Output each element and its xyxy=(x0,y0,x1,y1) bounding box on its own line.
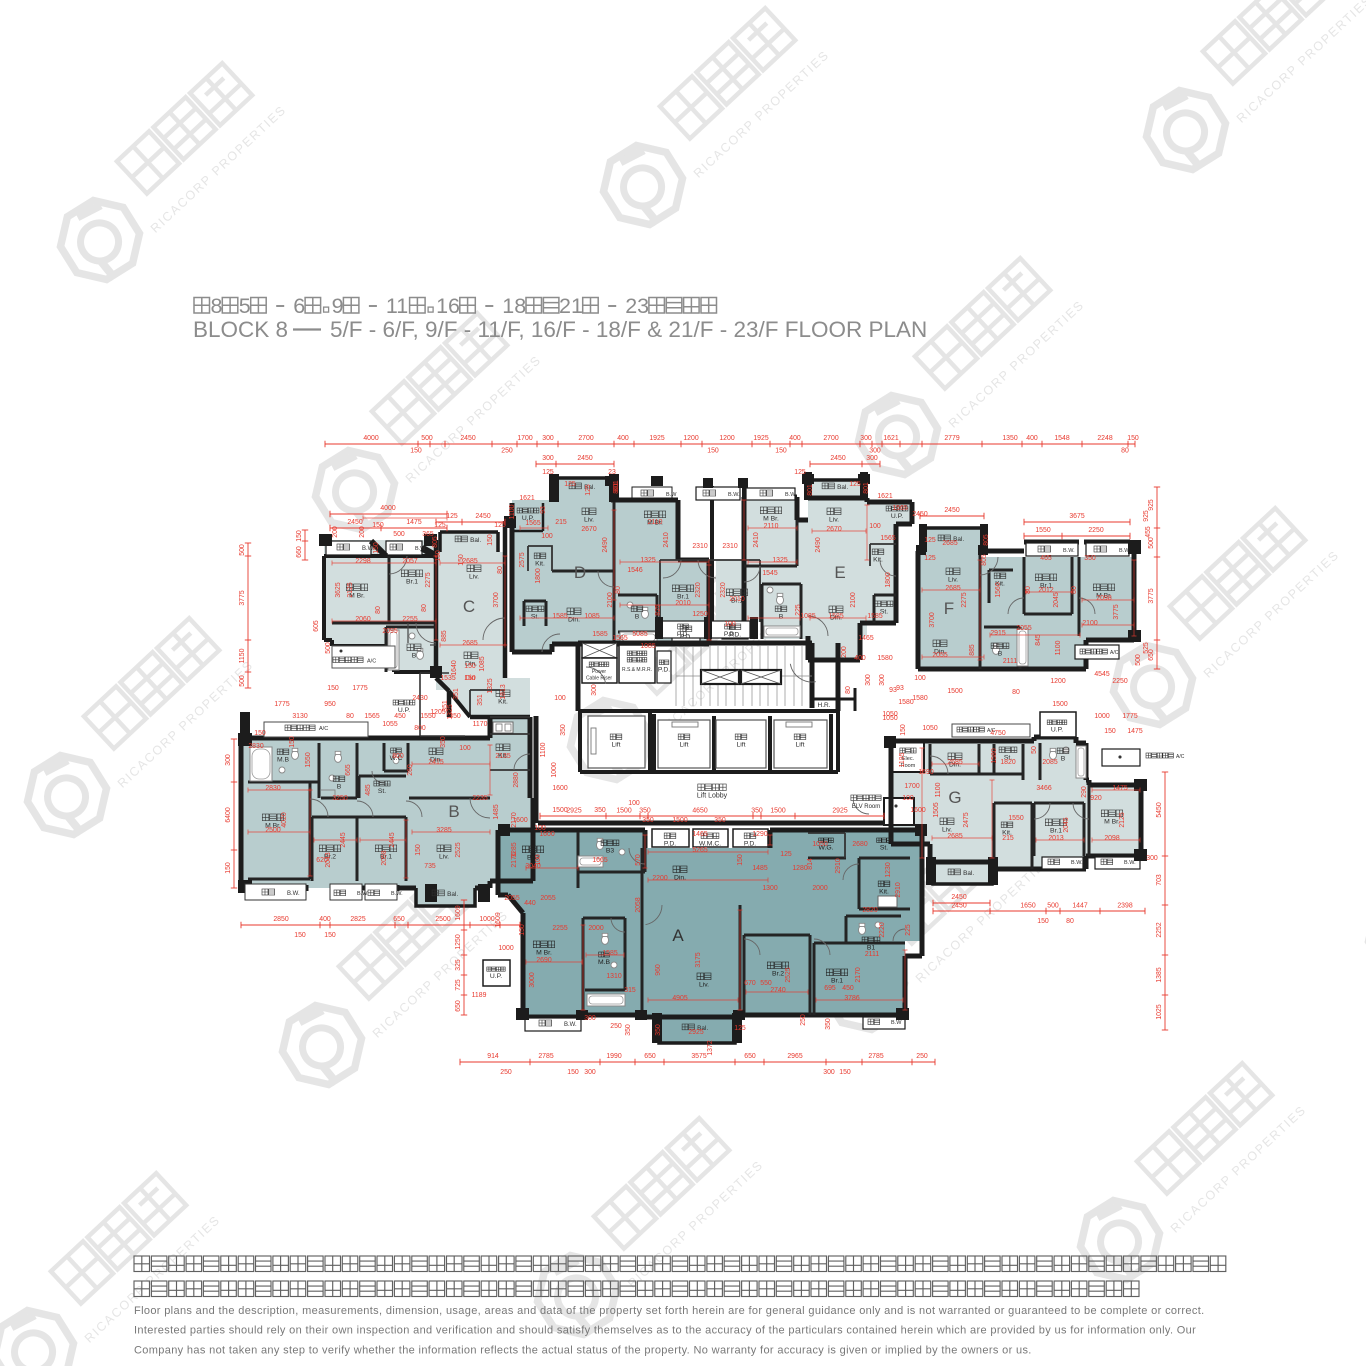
svg-text:351: 351 xyxy=(477,694,484,706)
svg-text:1640: 1640 xyxy=(451,660,458,675)
svg-text:100: 100 xyxy=(902,795,914,802)
svg-text:250: 250 xyxy=(916,1053,928,1060)
svg-text:1548: 1548 xyxy=(1054,435,1069,442)
svg-text:150: 150 xyxy=(373,542,380,554)
svg-text:Interested parties should rely: Interested parties should rely on their … xyxy=(134,1325,1196,1337)
svg-text:2450: 2450 xyxy=(912,511,927,518)
svg-text:100: 100 xyxy=(914,675,926,682)
svg-text:ELV Room: ELV Room xyxy=(852,804,881,810)
svg-text:Br.1: Br.1 xyxy=(406,579,418,586)
svg-text:1565: 1565 xyxy=(525,520,540,527)
svg-text:2475: 2475 xyxy=(963,812,970,827)
svg-text:80: 80 xyxy=(845,686,852,694)
svg-text:2450: 2450 xyxy=(830,455,845,462)
svg-text:125: 125 xyxy=(780,851,792,858)
svg-text:5: 5 xyxy=(239,294,251,318)
svg-text:3775: 3775 xyxy=(1113,604,1120,619)
svg-text:250: 250 xyxy=(500,1069,512,1076)
svg-text:2779: 2779 xyxy=(944,435,959,442)
svg-text:925: 925 xyxy=(1143,510,1150,522)
svg-text:2310: 2310 xyxy=(722,543,737,550)
svg-text:M.B: M.B xyxy=(598,959,611,966)
svg-text:2910: 2910 xyxy=(895,882,902,897)
svg-text:400: 400 xyxy=(319,916,331,923)
svg-text:2685: 2685 xyxy=(462,640,477,647)
svg-text:1565: 1565 xyxy=(880,535,895,542)
svg-text:500: 500 xyxy=(239,544,246,556)
svg-text:150: 150 xyxy=(1127,435,1139,442)
svg-text:1025: 1025 xyxy=(1156,1004,1163,1019)
svg-text:1550: 1550 xyxy=(1008,815,1023,822)
svg-text:Liv.: Liv. xyxy=(439,854,449,861)
svg-text:920: 920 xyxy=(1090,795,1102,802)
svg-text:300: 300 xyxy=(542,435,554,442)
svg-text:2398: 2398 xyxy=(1117,903,1132,910)
svg-text:2098: 2098 xyxy=(1104,835,1119,842)
svg-text:2830: 2830 xyxy=(248,743,263,750)
svg-text:1700: 1700 xyxy=(904,783,919,790)
svg-text:2010: 2010 xyxy=(675,600,690,607)
svg-text:2111: 2111 xyxy=(865,951,879,958)
svg-text:4905: 4905 xyxy=(672,995,687,1002)
svg-text:1300: 1300 xyxy=(762,885,777,892)
svg-text:2525: 2525 xyxy=(785,967,792,982)
svg-text:B.W.: B.W. xyxy=(1124,860,1136,866)
svg-text:3775: 3775 xyxy=(1148,588,1155,603)
svg-text:350: 350 xyxy=(449,713,461,720)
svg-text:1325: 1325 xyxy=(487,678,494,693)
svg-text:1475: 1475 xyxy=(406,519,421,526)
svg-text:2740: 2740 xyxy=(770,987,785,994)
svg-text:2685: 2685 xyxy=(947,833,962,840)
svg-text:D: D xyxy=(574,563,586,582)
svg-text:200: 200 xyxy=(332,526,339,538)
svg-text:B: B xyxy=(998,651,1003,658)
svg-text:665: 665 xyxy=(345,764,352,776)
svg-text:P.D.: P.D. xyxy=(744,841,756,848)
svg-text:825: 825 xyxy=(655,604,662,616)
svg-text:620: 620 xyxy=(316,857,328,864)
svg-text:A/C: A/C xyxy=(1110,650,1119,656)
svg-text:2575: 2575 xyxy=(519,552,526,567)
svg-text:2010: 2010 xyxy=(729,596,744,603)
svg-text:B.W: B.W xyxy=(415,546,426,552)
svg-text:2450: 2450 xyxy=(475,513,490,520)
svg-text:1465: 1465 xyxy=(858,635,873,642)
svg-text:1385: 1385 xyxy=(1156,967,1163,982)
svg-text:1000: 1000 xyxy=(551,762,558,777)
svg-text:P.D.: P.D. xyxy=(677,631,689,638)
svg-text:300: 300 xyxy=(823,1069,835,1076)
svg-text:B.W.: B.W. xyxy=(391,891,403,897)
svg-text:1600: 1600 xyxy=(539,831,554,838)
svg-text:215: 215 xyxy=(1002,835,1014,842)
svg-text:1475: 1475 xyxy=(1127,728,1142,735)
svg-text:1505: 1505 xyxy=(933,802,940,817)
svg-text:B: B xyxy=(1061,756,1066,763)
svg-text:St.: St. xyxy=(531,614,539,621)
svg-text:Br.1: Br.1 xyxy=(1050,828,1062,835)
svg-text:2110: 2110 xyxy=(648,519,663,526)
svg-text:1650: 1650 xyxy=(1020,903,1035,910)
svg-text:1775: 1775 xyxy=(1122,713,1137,720)
svg-text:300: 300 xyxy=(866,455,878,462)
svg-text:2410: 2410 xyxy=(753,532,760,547)
svg-text:885: 885 xyxy=(969,644,976,656)
svg-text:2450: 2450 xyxy=(951,903,966,910)
svg-text:B.W: B.W xyxy=(666,492,677,498)
svg-text:Liv.: Liv. xyxy=(829,517,839,524)
svg-text:1565: 1565 xyxy=(364,713,379,720)
svg-text:4000: 4000 xyxy=(380,505,395,512)
svg-text:16: 16 xyxy=(436,294,460,318)
svg-text:300: 300 xyxy=(869,448,881,455)
svg-text:150: 150 xyxy=(519,924,526,936)
svg-text:Din.: Din. xyxy=(674,875,686,882)
svg-text:5/F - 6/F, 9/F - 11/F, 16/F -: 5/F - 6/F, 9/F - 11/F, 16/F - 18/F & 21/… xyxy=(330,317,927,342)
svg-text:1585: 1585 xyxy=(867,613,882,620)
svg-text:300: 300 xyxy=(879,674,886,686)
svg-text:4020: 4020 xyxy=(281,812,288,827)
svg-text:650: 650 xyxy=(455,1000,462,1012)
svg-text:2450: 2450 xyxy=(347,519,362,526)
svg-text:350: 350 xyxy=(825,1018,832,1030)
svg-text:80: 80 xyxy=(375,606,382,614)
svg-text:Liv.: Liv. xyxy=(948,577,958,584)
svg-text:150: 150 xyxy=(327,685,339,692)
svg-text:215: 215 xyxy=(555,519,567,526)
svg-text:570: 570 xyxy=(635,854,642,866)
svg-text:2320: 2320 xyxy=(695,582,702,597)
svg-text:2670: 2670 xyxy=(581,526,596,533)
svg-text:350: 350 xyxy=(655,1024,662,1036)
svg-text:2450: 2450 xyxy=(460,435,475,442)
svg-text:4750: 4750 xyxy=(990,730,1005,737)
svg-text:1550: 1550 xyxy=(305,752,312,767)
svg-text:St.: St. xyxy=(378,788,386,795)
svg-text:6: 6 xyxy=(293,294,305,318)
svg-text:2058: 2058 xyxy=(381,850,388,865)
svg-text:Lift: Lift xyxy=(736,742,745,749)
svg-text:100: 100 xyxy=(554,695,566,702)
svg-text:2685: 2685 xyxy=(945,585,960,592)
svg-text:1485: 1485 xyxy=(752,865,767,872)
svg-text:80: 80 xyxy=(1066,918,1074,925)
svg-text:B3: B3 xyxy=(606,848,615,855)
svg-text:2255: 2255 xyxy=(552,925,567,932)
svg-text:3175: 3175 xyxy=(695,952,702,967)
svg-text:80: 80 xyxy=(1121,448,1129,455)
svg-text:U.P.: U.P. xyxy=(891,513,903,520)
svg-text:2055: 2055 xyxy=(932,652,947,659)
svg-text:735: 735 xyxy=(424,863,436,870)
svg-text:350: 350 xyxy=(560,724,567,736)
svg-text:150: 150 xyxy=(289,736,296,748)
svg-text:Bal.: Bal. xyxy=(963,870,974,877)
svg-text:2925: 2925 xyxy=(566,808,581,815)
svg-text:150: 150 xyxy=(464,675,476,682)
svg-text:1205: 1205 xyxy=(430,709,445,716)
svg-text:2298: 2298 xyxy=(355,558,370,565)
svg-text:2055: 2055 xyxy=(1016,625,1031,632)
svg-text:150: 150 xyxy=(567,1069,579,1076)
svg-text:2490: 2490 xyxy=(815,537,822,552)
svg-text:2220: 2220 xyxy=(879,922,886,937)
svg-text:1200: 1200 xyxy=(1050,678,1065,685)
svg-text:3130: 3130 xyxy=(292,713,307,720)
svg-text:2170: 2170 xyxy=(855,967,862,982)
svg-text:U.P.: U.P. xyxy=(1051,727,1063,734)
svg-text:Liv.: Liv. xyxy=(584,517,594,524)
svg-text:Lift: Lift xyxy=(795,742,804,749)
svg-text:150: 150 xyxy=(324,932,336,939)
svg-text:2275: 2275 xyxy=(961,592,968,607)
svg-text:93: 93 xyxy=(896,685,904,692)
svg-text:350: 350 xyxy=(751,808,763,815)
svg-text:2320: 2320 xyxy=(720,582,727,597)
svg-text:1580: 1580 xyxy=(898,699,913,706)
svg-text:150: 150 xyxy=(254,730,266,737)
svg-text:1280: 1280 xyxy=(792,865,807,872)
svg-text:Bal.: Bal. xyxy=(470,537,481,544)
svg-text:1085: 1085 xyxy=(640,643,655,650)
svg-text:703: 703 xyxy=(1156,874,1163,886)
svg-text:2170: 2170 xyxy=(511,812,518,827)
svg-text:2450: 2450 xyxy=(944,507,959,514)
svg-text:650: 650 xyxy=(393,916,405,923)
svg-text:2085: 2085 xyxy=(1042,759,1057,766)
svg-text:1585: 1585 xyxy=(552,613,567,620)
svg-text:801: 801 xyxy=(613,482,620,494)
svg-text:225: 225 xyxy=(905,924,912,936)
svg-text:465: 465 xyxy=(1040,555,1052,562)
svg-text:2098: 2098 xyxy=(1096,595,1111,602)
svg-text:2500: 2500 xyxy=(435,916,450,923)
svg-text:2415: 2415 xyxy=(428,759,443,766)
svg-text:1546: 1546 xyxy=(627,567,642,574)
svg-text:1800: 1800 xyxy=(885,572,892,587)
svg-text:2785: 2785 xyxy=(538,1053,553,1060)
svg-text:2820: 2820 xyxy=(862,907,877,914)
svg-text:1475: 1475 xyxy=(1112,785,1127,792)
svg-text:200: 200 xyxy=(359,526,366,538)
svg-text:93: 93 xyxy=(540,506,547,514)
svg-text:2700: 2700 xyxy=(823,435,838,442)
svg-text:150: 150 xyxy=(372,522,384,529)
svg-text:695: 695 xyxy=(824,985,836,992)
svg-text:1665: 1665 xyxy=(592,857,607,864)
svg-text:650: 650 xyxy=(744,1053,756,1060)
svg-text:500: 500 xyxy=(421,435,433,442)
svg-text:80: 80 xyxy=(1012,689,1020,696)
svg-text:1250: 1250 xyxy=(692,611,707,618)
svg-text:260: 260 xyxy=(407,764,414,776)
svg-text:1500: 1500 xyxy=(947,688,962,695)
svg-text:Br.2: Br.2 xyxy=(772,971,784,978)
svg-text:A/C: A/C xyxy=(367,659,376,665)
svg-text:2125: 2125 xyxy=(347,582,354,597)
svg-text:125: 125 xyxy=(585,484,592,496)
svg-text:1690: 1690 xyxy=(918,769,933,776)
svg-text:2430: 2430 xyxy=(412,695,427,702)
svg-text:B: B xyxy=(635,614,640,621)
svg-text:450: 450 xyxy=(842,985,854,992)
svg-text:80: 80 xyxy=(346,713,354,720)
svg-text:B.W.: B.W. xyxy=(728,492,740,498)
svg-text:1560: 1560 xyxy=(995,582,1002,597)
svg-text:125: 125 xyxy=(564,481,576,488)
svg-text:2013: 2013 xyxy=(1048,835,1063,842)
svg-text:2135: 2135 xyxy=(495,753,510,760)
svg-text:150: 150 xyxy=(900,724,907,736)
svg-text:1600: 1600 xyxy=(910,807,925,814)
svg-text:250: 250 xyxy=(501,448,513,455)
svg-text:2055: 2055 xyxy=(504,895,519,902)
svg-text:F: F xyxy=(944,599,954,618)
svg-text:1150: 1150 xyxy=(239,648,246,663)
svg-text:125: 125 xyxy=(924,555,936,562)
svg-text:B.W.: B.W. xyxy=(1063,548,1075,554)
svg-text:914: 914 xyxy=(487,1053,499,1060)
svg-text:B.W.: B.W. xyxy=(1071,860,1083,866)
svg-text:315: 315 xyxy=(624,987,636,994)
svg-text:1585: 1585 xyxy=(828,613,843,620)
svg-text:125: 125 xyxy=(849,481,861,488)
svg-text:885: 885 xyxy=(441,630,448,642)
svg-text:A/C: A/C xyxy=(1176,754,1185,760)
svg-text:960: 960 xyxy=(655,964,662,976)
svg-text:1775: 1775 xyxy=(352,685,367,692)
svg-text:1310: 1310 xyxy=(606,973,621,980)
svg-text:50: 50 xyxy=(1031,746,1038,754)
svg-text:500: 500 xyxy=(393,531,405,538)
svg-text:350: 350 xyxy=(642,817,654,824)
svg-text:H.R.: H.R. xyxy=(818,702,831,709)
svg-text:125: 125 xyxy=(924,537,936,544)
svg-text:300: 300 xyxy=(1146,855,1158,862)
svg-text:150: 150 xyxy=(296,530,303,542)
svg-text:B: B xyxy=(412,653,417,660)
svg-text:300: 300 xyxy=(225,754,232,766)
svg-text:125: 125 xyxy=(734,1025,746,1032)
svg-text:2045: 2045 xyxy=(1063,817,1070,832)
svg-text:1609: 1609 xyxy=(495,912,502,927)
svg-text:1545: 1545 xyxy=(762,570,777,577)
svg-text:1565: 1565 xyxy=(892,505,907,512)
svg-text:B.W.: B.W. xyxy=(564,1022,577,1028)
svg-text:725: 725 xyxy=(455,979,462,991)
svg-text:1050: 1050 xyxy=(922,725,937,732)
svg-text:2111: 2111 xyxy=(1003,658,1017,665)
svg-text:1580: 1580 xyxy=(912,695,927,702)
svg-text:1200: 1200 xyxy=(719,435,734,442)
svg-text:2850: 2850 xyxy=(273,916,288,923)
svg-text:125: 125 xyxy=(446,513,458,520)
svg-text:M Br.: M Br. xyxy=(763,516,779,523)
svg-text:1085: 1085 xyxy=(479,656,486,671)
svg-text:440: 440 xyxy=(524,900,536,907)
svg-text:C: C xyxy=(463,597,475,616)
svg-text:1800: 1800 xyxy=(535,568,542,583)
svg-text:G: G xyxy=(948,788,961,807)
svg-text:1230: 1230 xyxy=(885,862,892,877)
svg-text:2925: 2925 xyxy=(688,1029,703,1036)
svg-text:1813: 1813 xyxy=(500,684,507,699)
svg-text:2248: 2248 xyxy=(1097,435,1112,442)
svg-text:80: 80 xyxy=(421,604,428,612)
svg-text:1485: 1485 xyxy=(493,804,500,819)
svg-text:1820: 1820 xyxy=(1000,759,1015,766)
svg-text:125: 125 xyxy=(494,522,506,529)
svg-text:Kit.: Kit. xyxy=(535,561,545,568)
svg-text:St.: St. xyxy=(880,845,888,852)
svg-text:Lift: Lift xyxy=(611,742,620,749)
svg-text:2700: 2700 xyxy=(578,435,593,442)
svg-text:B.W.: B.W. xyxy=(287,891,300,897)
svg-text:150: 150 xyxy=(225,862,232,874)
svg-text:2910: 2910 xyxy=(835,858,842,873)
svg-text:B: B xyxy=(448,802,459,821)
svg-text:1100: 1100 xyxy=(935,782,942,797)
svg-text:925: 925 xyxy=(1148,499,1155,511)
svg-text:300: 300 xyxy=(865,674,872,686)
svg-text:2965: 2965 xyxy=(787,1053,802,1060)
svg-text:1609: 1609 xyxy=(455,905,462,920)
svg-text:150: 150 xyxy=(737,854,744,866)
svg-text:1000: 1000 xyxy=(498,945,513,952)
svg-text:150: 150 xyxy=(1104,728,1116,735)
svg-text:1565: 1565 xyxy=(612,635,627,642)
svg-text:500: 500 xyxy=(239,675,246,687)
svg-text:2785: 2785 xyxy=(868,1053,883,1060)
svg-text:1189: 1189 xyxy=(472,992,487,999)
svg-text:150: 150 xyxy=(707,448,719,455)
svg-text:1500: 1500 xyxy=(616,808,631,815)
svg-text:P.D.: P.D. xyxy=(724,631,736,638)
svg-text:125: 125 xyxy=(434,522,446,529)
svg-text:2825: 2825 xyxy=(350,916,365,923)
svg-text:3285: 3285 xyxy=(511,842,518,857)
svg-text:1000: 1000 xyxy=(1094,713,1109,720)
svg-text:845: 845 xyxy=(1035,634,1042,646)
svg-text:E: E xyxy=(834,563,845,582)
svg-text:250: 250 xyxy=(800,1014,807,1026)
svg-text:U.P.: U.P. xyxy=(490,973,502,980)
svg-text:1170: 1170 xyxy=(473,721,488,728)
svg-text:1990: 1990 xyxy=(606,1053,621,1060)
svg-text:2490: 2490 xyxy=(602,537,609,552)
svg-text:550: 550 xyxy=(760,980,772,987)
svg-text:9: 9 xyxy=(332,294,344,318)
svg-text:1585: 1585 xyxy=(592,631,607,638)
svg-text:1050: 1050 xyxy=(882,715,897,722)
svg-text:350: 350 xyxy=(594,807,606,814)
svg-text:1500: 1500 xyxy=(552,807,567,814)
svg-text:450: 450 xyxy=(394,713,406,720)
svg-text:3700: 3700 xyxy=(929,612,936,627)
svg-text:325: 325 xyxy=(455,959,462,971)
svg-text:400: 400 xyxy=(1026,435,1038,442)
svg-text:Bal.: Bal. xyxy=(837,484,848,491)
svg-text:8: 8 xyxy=(211,294,223,318)
svg-text:1100: 1100 xyxy=(540,742,547,757)
svg-text:6400: 6400 xyxy=(225,807,232,822)
svg-text:351: 351 xyxy=(453,688,460,700)
svg-text:Bal.: Bal. xyxy=(447,891,458,898)
svg-text:150: 150 xyxy=(775,448,787,455)
svg-text:2310: 2310 xyxy=(692,543,707,550)
svg-text:125: 125 xyxy=(542,469,554,476)
